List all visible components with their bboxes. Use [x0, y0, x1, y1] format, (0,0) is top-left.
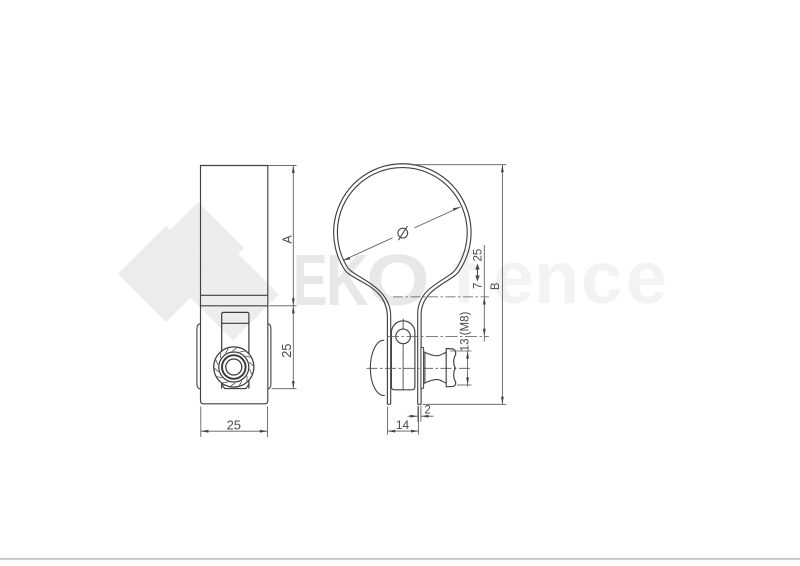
svg-text:A: A [281, 235, 295, 244]
svg-text:e: e [493, 236, 534, 319]
svg-text:n: n [534, 236, 579, 319]
svg-text:O: O [366, 241, 430, 321]
svg-text:f: f [452, 236, 477, 319]
svg-text:7: 7 [473, 283, 485, 289]
svg-text:25: 25 [473, 249, 485, 262]
svg-text:e: e [626, 236, 667, 319]
svg-text:2: 2 [424, 404, 430, 416]
svg-text:B: B [490, 282, 502, 290]
svg-text:E: E [293, 241, 328, 321]
svg-text:c: c [581, 236, 622, 319]
svg-text:25: 25 [227, 418, 241, 433]
svg-text:13 (M8): 13 (M8) [459, 312, 471, 352]
svg-text:14: 14 [396, 418, 410, 432]
svg-text:25: 25 [279, 343, 294, 357]
